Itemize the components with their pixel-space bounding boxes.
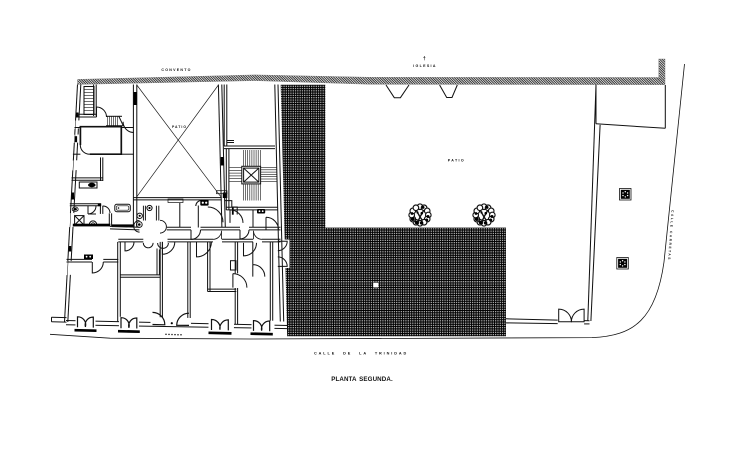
svg-text:CONVENTO: CONVENTO [161, 68, 191, 72]
svg-text:PLANTA SEGUNDA.: PLANTA SEGUNDA. [331, 376, 393, 383]
svg-text:IGLESIA: IGLESIA [413, 64, 436, 68]
svg-text:PATIO: PATIO [448, 159, 465, 163]
svg-text:†: † [423, 56, 426, 62]
svg-text:PATIO: PATIO [172, 125, 187, 129]
svg-text:CALLE DE LA TRINIDAD: CALLE DE LA TRINIDAD [314, 351, 408, 355]
